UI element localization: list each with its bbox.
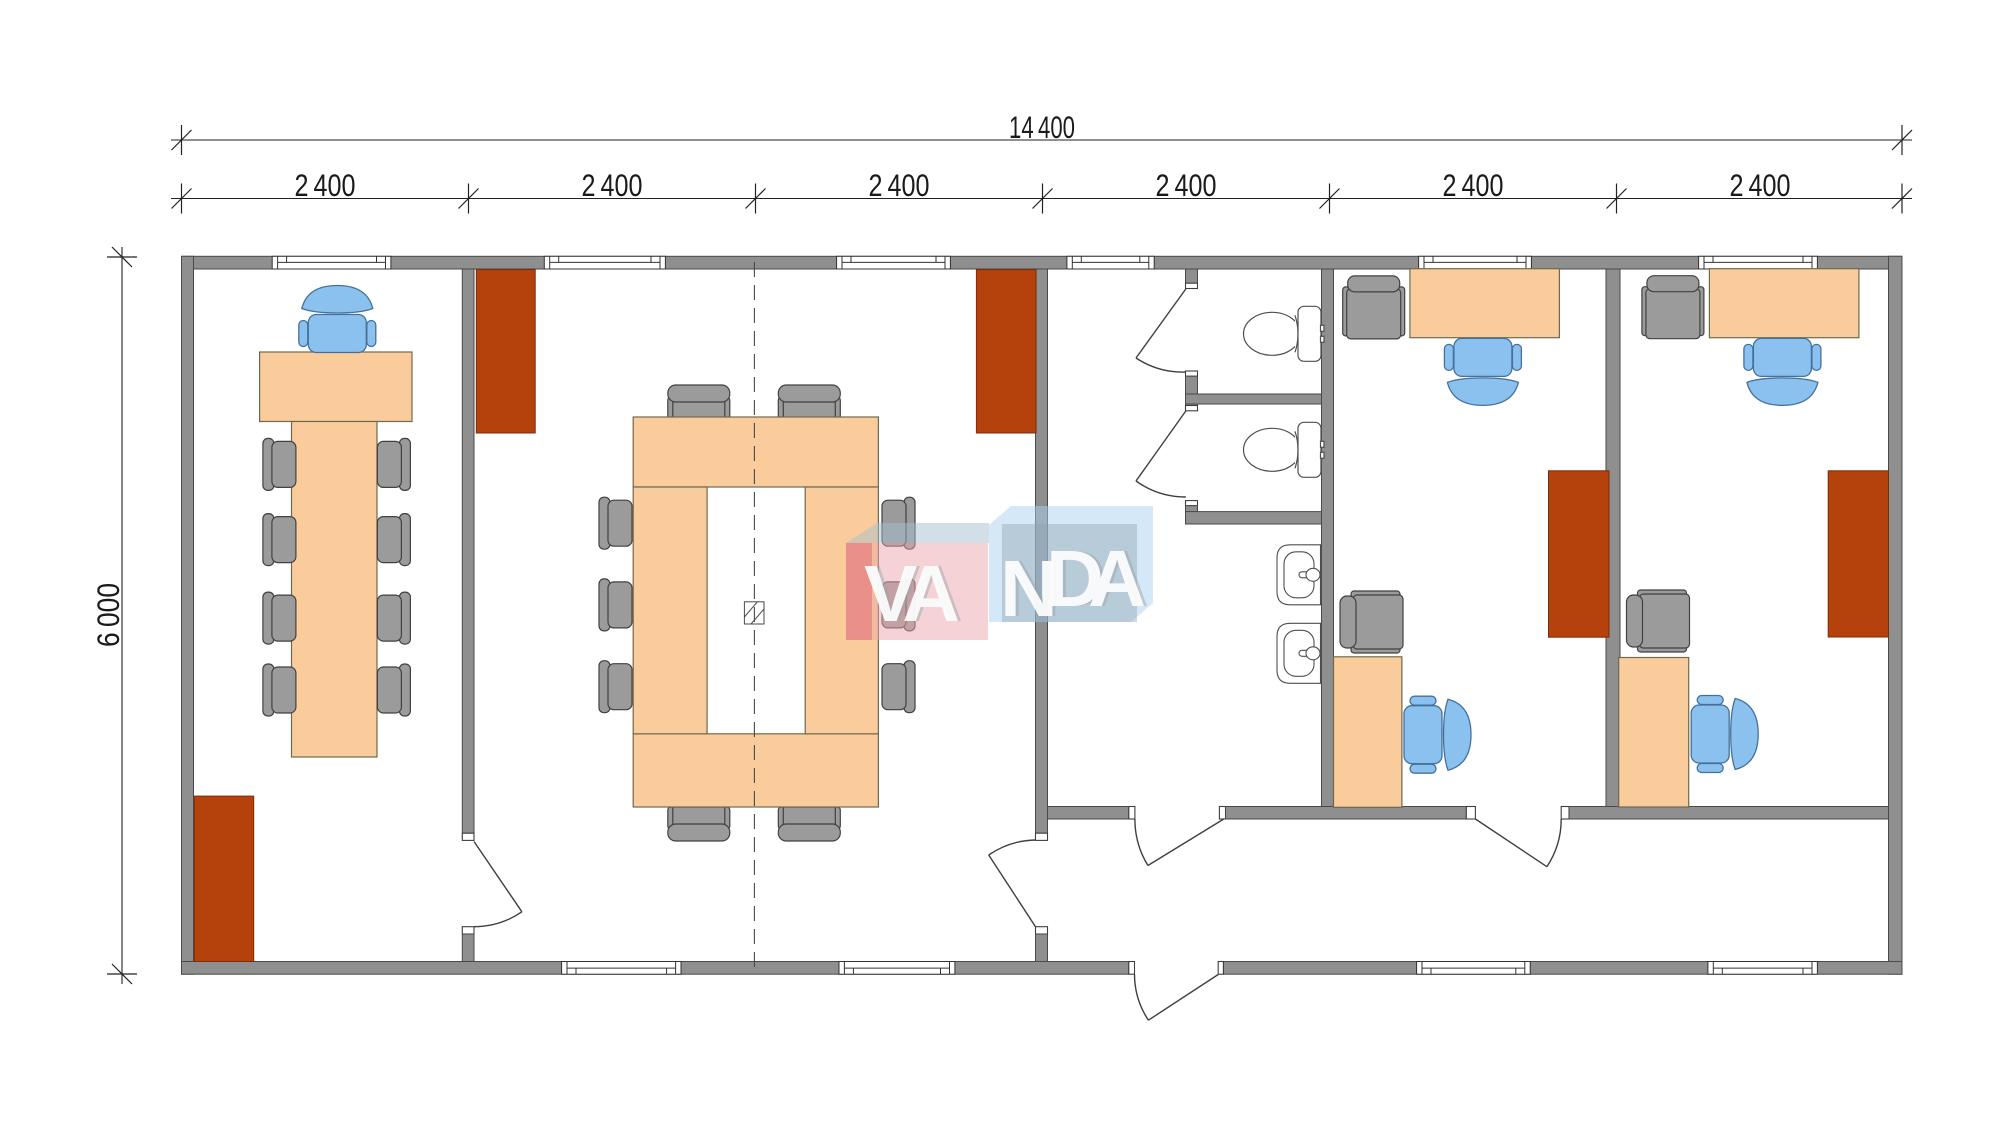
svg-text:2 400: 2 400 — [582, 167, 643, 203]
svg-text:DA: DA — [1046, 534, 1146, 623]
svg-text:2 400: 2 400 — [869, 167, 930, 203]
svg-text:2 400: 2 400 — [1730, 167, 1791, 203]
svg-text:2 400: 2 400 — [1443, 167, 1504, 203]
svg-text:2 400: 2 400 — [1156, 167, 1217, 203]
svg-text:14 400: 14 400 — [1009, 109, 1075, 145]
svg-text:2 400: 2 400 — [295, 167, 356, 203]
svg-text:VA: VA — [864, 549, 960, 638]
svg-text:6 000: 6 000 — [90, 583, 126, 647]
